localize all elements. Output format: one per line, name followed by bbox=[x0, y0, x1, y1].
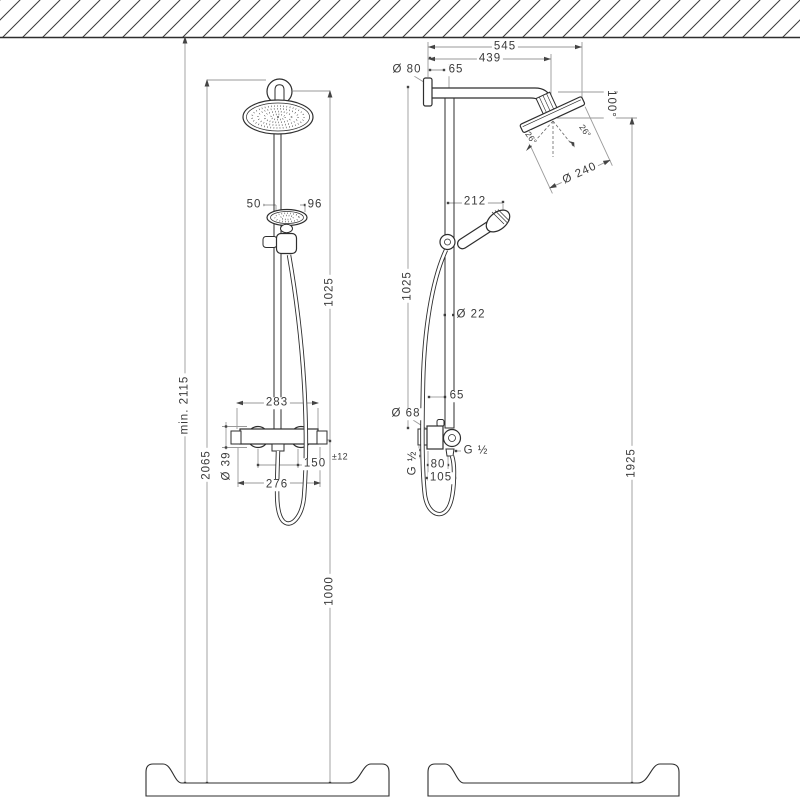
ceiling-hatch bbox=[0, 0, 800, 38]
shower-tray-front bbox=[146, 764, 389, 796]
dim-valve-width: 283 bbox=[264, 397, 290, 409]
dim-pipe-upper-length-front: 1025 bbox=[324, 275, 336, 309]
riser-pipe-side bbox=[445, 98, 454, 428]
overhead-shower-front bbox=[243, 100, 313, 134]
dim-head-drop: 100° bbox=[604, 88, 616, 120]
dim-flange-diameter: Ø 80 bbox=[391, 64, 424, 76]
dim-handshower-offset-side: 212 bbox=[462, 196, 488, 208]
dim-union-distance: 276 bbox=[264, 479, 290, 491]
dim-supply-distance: 150 bbox=[302, 458, 328, 470]
dim-handshower-width: 96 bbox=[306, 199, 325, 211]
side-view bbox=[418, 78, 585, 456]
shower-arm bbox=[432, 88, 554, 110]
shower-tray-side bbox=[428, 764, 679, 796]
dim-supply-tolerance: ±12 bbox=[331, 453, 349, 462]
valve-handle-side bbox=[444, 430, 461, 447]
dim-reach-total: 545 bbox=[492, 41, 518, 53]
drawing-canvas bbox=[0, 0, 800, 800]
dim-handshower-offset: 50 bbox=[245, 199, 264, 211]
shower-trays bbox=[146, 764, 679, 796]
valve-body-side bbox=[427, 426, 443, 449]
dim-thread-hose: G ½ bbox=[462, 445, 491, 457]
hand-shower-side bbox=[440, 206, 514, 251]
dim-wall-to-pipe: 65 bbox=[447, 64, 466, 76]
dim-head-to-floor: 1925 bbox=[626, 446, 638, 480]
dim-reach-arm: 439 bbox=[477, 53, 503, 65]
hose-connector-side bbox=[446, 449, 454, 456]
holder-bracket-front bbox=[263, 237, 277, 248]
dim-escutcheon-diameter: Ø 68 bbox=[390, 408, 423, 420]
dim-handle-diameter: Ø 39 bbox=[221, 450, 233, 483]
dim-bar-offset: 65 bbox=[448, 390, 467, 402]
dim-min-ceiling-height: min. 2115 bbox=[179, 374, 191, 437]
dim-pipe-length-side: 1025 bbox=[402, 269, 414, 303]
technical-drawing-shower-system: min. 2115 2065 1025 1000 50 96 283 Ø 39 … bbox=[0, 0, 800, 800]
dimension-ticks bbox=[184, 57, 633, 784]
dim-hose-offset-lower: 105 bbox=[428, 472, 454, 484]
dim-valve-to-floor: 1000 bbox=[324, 574, 336, 608]
hose-outlet-front bbox=[272, 444, 284, 451]
riser-pipe-front bbox=[274, 100, 281, 430]
front-view bbox=[231, 79, 327, 451]
dim-pipe-top-height: 2065 bbox=[201, 448, 213, 482]
dim-pipe-diameter: Ø 22 bbox=[455, 309, 488, 321]
dim-thread-wall: G ½ bbox=[407, 449, 419, 478]
wall-flange bbox=[424, 78, 433, 106]
dim-hose-offset-upper: 80 bbox=[429, 459, 448, 471]
hand-shower-holder bbox=[440, 235, 455, 250]
hand-shower-front bbox=[263, 210, 307, 254]
